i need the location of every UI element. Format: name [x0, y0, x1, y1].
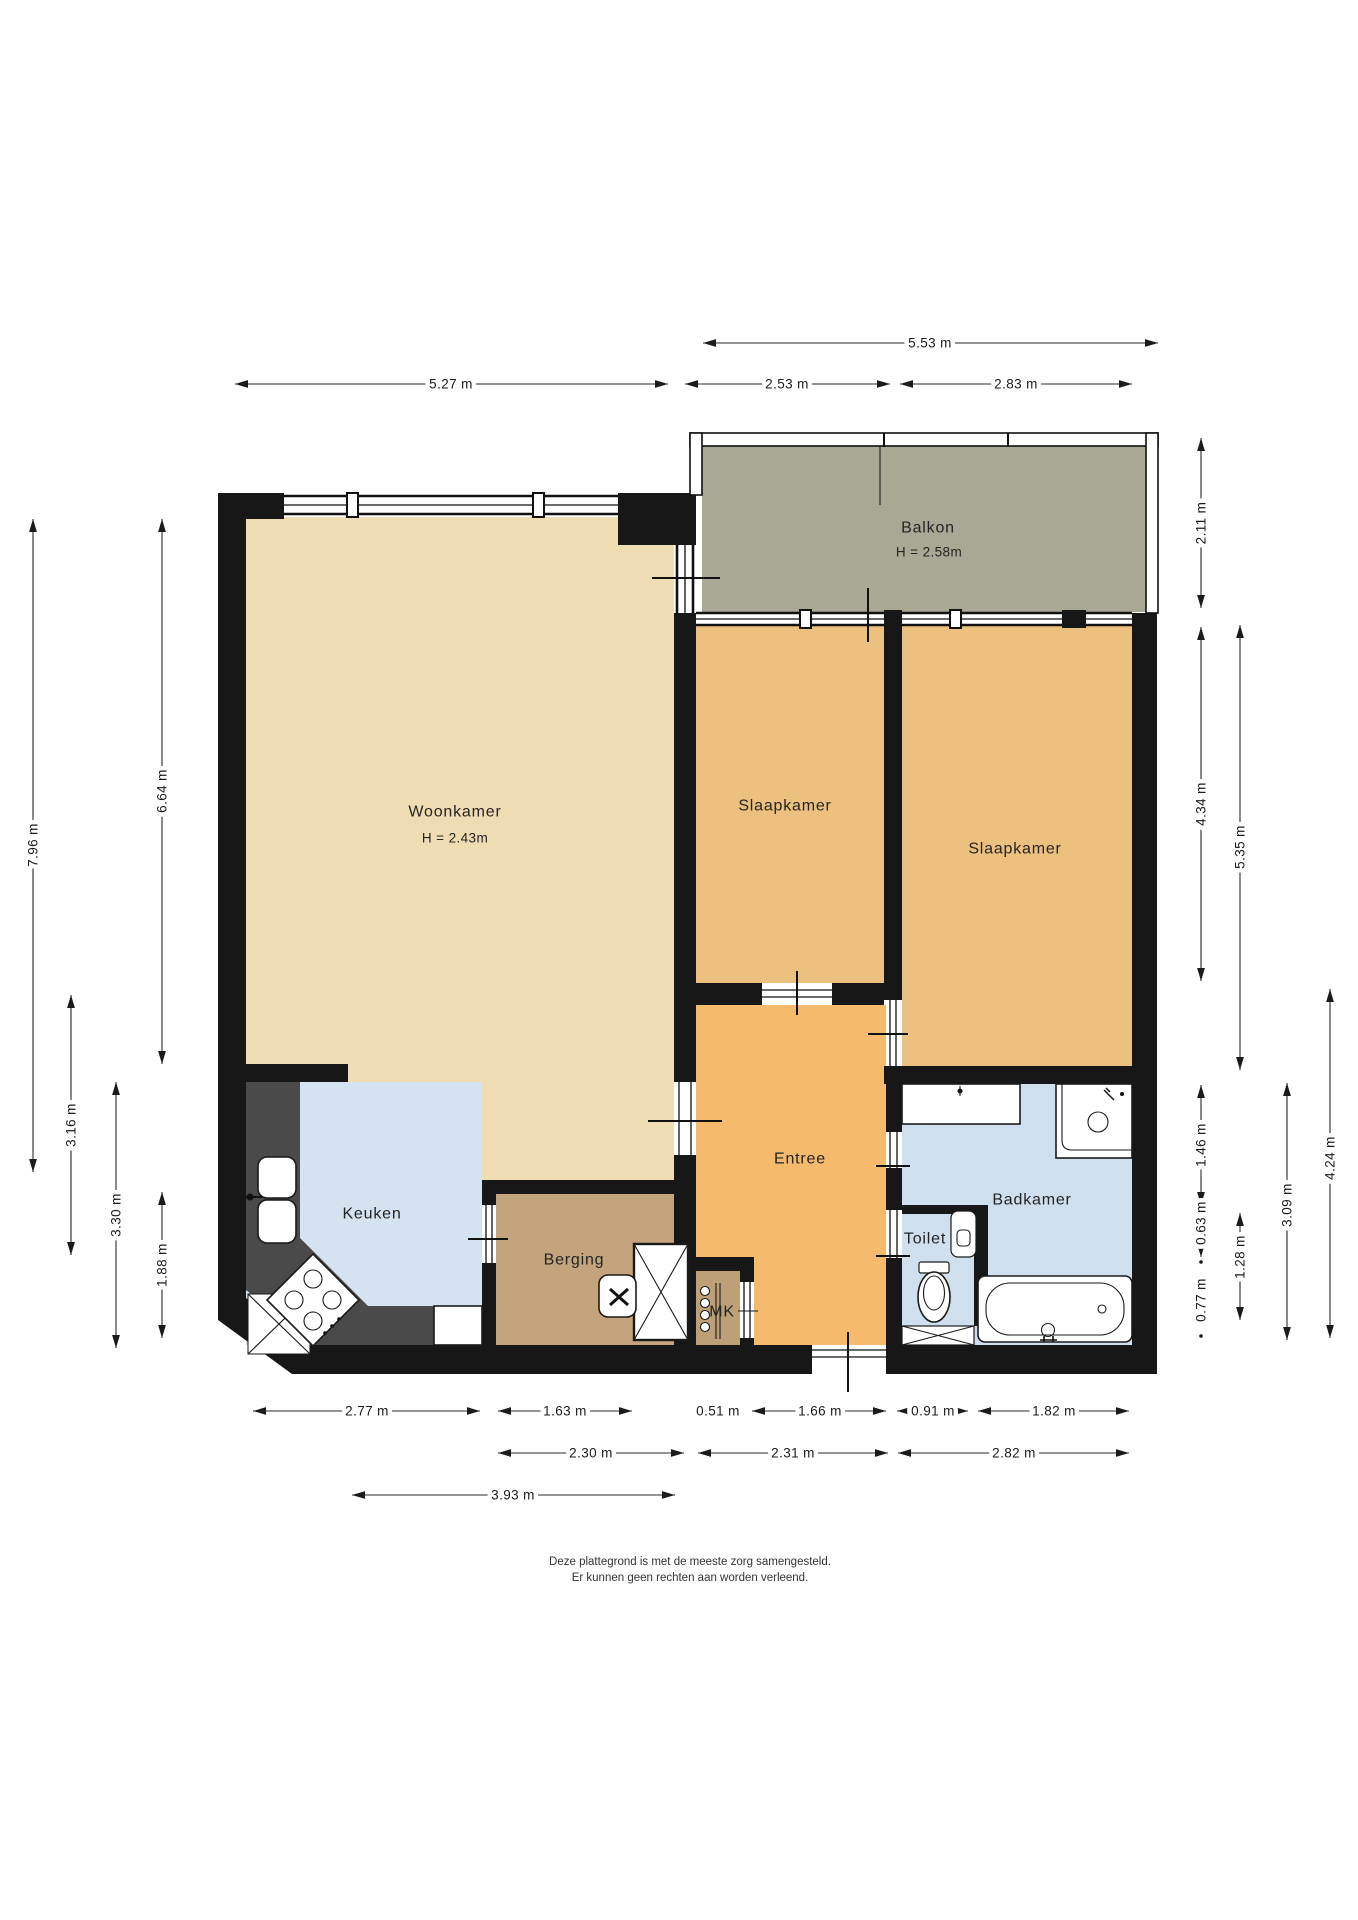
dim-left-796: 7.96 m [26, 823, 41, 867]
wall-slaapkamer2-bottom [884, 1066, 1157, 1084]
dim-bottom-051: 0.51 m [696, 1404, 740, 1419]
door-gap [482, 1205, 496, 1263]
dim-bottom-166: 1.66 m [798, 1404, 842, 1419]
dim-right-424: 4.24 m [1323, 1136, 1338, 1180]
woonkamer-floor-2 [348, 1064, 674, 1082]
dim-bottom-182: 1.82 m [1032, 1404, 1076, 1419]
window-mullion [800, 610, 811, 628]
footer-line-2: Er kunnen geen rechten aan worden verlee… [572, 1572, 809, 1584]
woonkamer-height-label: H = 2.43m [422, 831, 488, 846]
footer-line-1: Deze plattegrond is met de meeste zorg s… [549, 1556, 831, 1568]
bathroom-washbasin [902, 1084, 1020, 1124]
wall-bottom-right [886, 1345, 1157, 1374]
wall-toilet-top [902, 1205, 988, 1214]
slaapkamer-links-label: Slaapkamer [738, 798, 831, 815]
dim-right-146: 1.46 m [1194, 1123, 1209, 1167]
balkon-height-label: H = 2.58m [896, 545, 962, 560]
dim-right-128: 1.28 m [1233, 1235, 1248, 1279]
railing-left [690, 433, 702, 495]
berging-label: Berging [544, 1252, 605, 1269]
dimensions-bottom: 2.77 m 1.63 m 0.51 m 1.66 m 0.91 m 1.82 … [253, 1404, 1129, 1503]
dim-bottom-231: 2.31 m [771, 1446, 815, 1461]
dim-top-527: 5.27 m [429, 377, 473, 392]
wall-between-bedrooms [884, 612, 902, 1000]
dim-right-309: 3.09 m [1280, 1183, 1295, 1227]
wall-entree-badkamer-2 [886, 1168, 902, 1210]
dim-right-063: 0.63 m [1194, 1201, 1209, 1245]
wall-right [1132, 613, 1157, 1374]
woonkamer-top-window [284, 493, 618, 517]
window-wall-block [1062, 610, 1086, 628]
door-gap [886, 1210, 902, 1258]
dim-bottom-163: 1.63 m [543, 1404, 587, 1419]
badkamer-label: Badkamer [992, 1192, 1071, 1209]
dim-left-664: 6.64 m [155, 769, 170, 813]
wall-berging-top [482, 1180, 696, 1194]
woonkamer-floor-3 [482, 1082, 674, 1180]
wall-entree-badkamer-1 [886, 1084, 902, 1132]
wall-top-right-corner [618, 493, 696, 545]
dimensions-top: 5.53 m 5.27 m 2.53 m 2.83 m [235, 336, 1158, 392]
dim-right-535: 5.35 m [1233, 825, 1248, 869]
railing-right [1146, 433, 1158, 613]
dim-right-077: 0.77 m [1194, 1278, 1209, 1322]
door-gap [886, 1132, 902, 1168]
footer: Deze plattegrond is met de meeste zorg s… [549, 1556, 831, 1584]
dim-right-434: 4.34 m [1194, 782, 1209, 826]
dim-bottom-282: 2.82 m [992, 1446, 1036, 1461]
toilet-label: Toilet [904, 1231, 946, 1248]
window-mullion [347, 493, 358, 517]
dim-bottom-230: 2.30 m [569, 1446, 613, 1461]
mk-door [740, 1282, 754, 1338]
toilet-sink [951, 1211, 976, 1257]
balkon-label: Balkon [901, 520, 955, 537]
wall-entree-badkamer-3 [886, 1258, 902, 1345]
floorplan-drawing: Woonkamer H = 2.43m Balkon H = 2.58m Sla… [0, 0, 1358, 1920]
wall-mk-top [696, 1257, 754, 1271]
woonkamer-floor [246, 517, 674, 1064]
window-mullion [533, 493, 544, 517]
dim-bottom-393: 3.93 m [491, 1488, 535, 1503]
wall-bottom-left [310, 1345, 812, 1374]
wall-mk-right-1 [740, 1271, 754, 1282]
bathtub [978, 1276, 1132, 1342]
door-gap [740, 1282, 754, 1338]
railing-top [690, 433, 1158, 446]
dim-left-330: 3.30 m [109, 1193, 124, 1237]
dim-right-211: 2.11 m [1194, 502, 1209, 545]
toilet-bowl [918, 1262, 950, 1322]
dim-top-553: 5.53 m [908, 336, 952, 351]
radiator [902, 1326, 974, 1345]
wall-woonkamer-slaapkamer [674, 613, 696, 1082]
wall-keuken-berging-1 [482, 1180, 496, 1205]
dim-bottom-277: 2.77 m [345, 1404, 389, 1419]
door-gap [674, 1082, 696, 1155]
wall-slaapkamer1-bottom-r [832, 983, 884, 1005]
window-wall-block [884, 610, 902, 628]
woonkamer-label: Woonkamer [408, 804, 501, 821]
entree-label: Entree [774, 1151, 826, 1168]
dim-bottom-091: 0.91 m [911, 1404, 955, 1419]
wall-top-left-corner [218, 493, 284, 519]
berging-closet [634, 1244, 688, 1340]
mk-label: MK [709, 1304, 735, 1321]
wall-slaapkamer1-bottom-l [696, 983, 762, 1005]
slaapkamer-rechts-label: Slaapkamer [968, 841, 1061, 858]
keuken-label: Keuken [342, 1206, 401, 1223]
wall-left [218, 493, 246, 1303]
wall-mk-right-2 [740, 1338, 754, 1345]
shower [1056, 1084, 1132, 1158]
wall-keuken-berging-2 [482, 1263, 496, 1345]
dim-left-316: 3.16 m [64, 1103, 79, 1147]
wall-keuken-stub [218, 1064, 348, 1082]
window-mullion [950, 610, 961, 628]
dim-top-253: 2.53 m [765, 377, 809, 392]
dim-top-283: 2.83 m [994, 377, 1038, 392]
boiler-unit [599, 1275, 636, 1317]
dimensions-left: 7.96 m 6.64 m 3.16 m 3.30 m 1.88 m [26, 519, 170, 1348]
kitchen-appliance [434, 1306, 482, 1345]
dim-left-188: 1.88 m [155, 1243, 170, 1287]
faucet-icon [247, 1194, 254, 1201]
dimensions-right: 2.11 m 4.34 m 5.35 m 1.46 m 0.63 m 0.77 … [1194, 438, 1338, 1340]
floorplan-page: Woonkamer H = 2.43m Balkon H = 2.58m Sla… [0, 0, 1358, 1920]
